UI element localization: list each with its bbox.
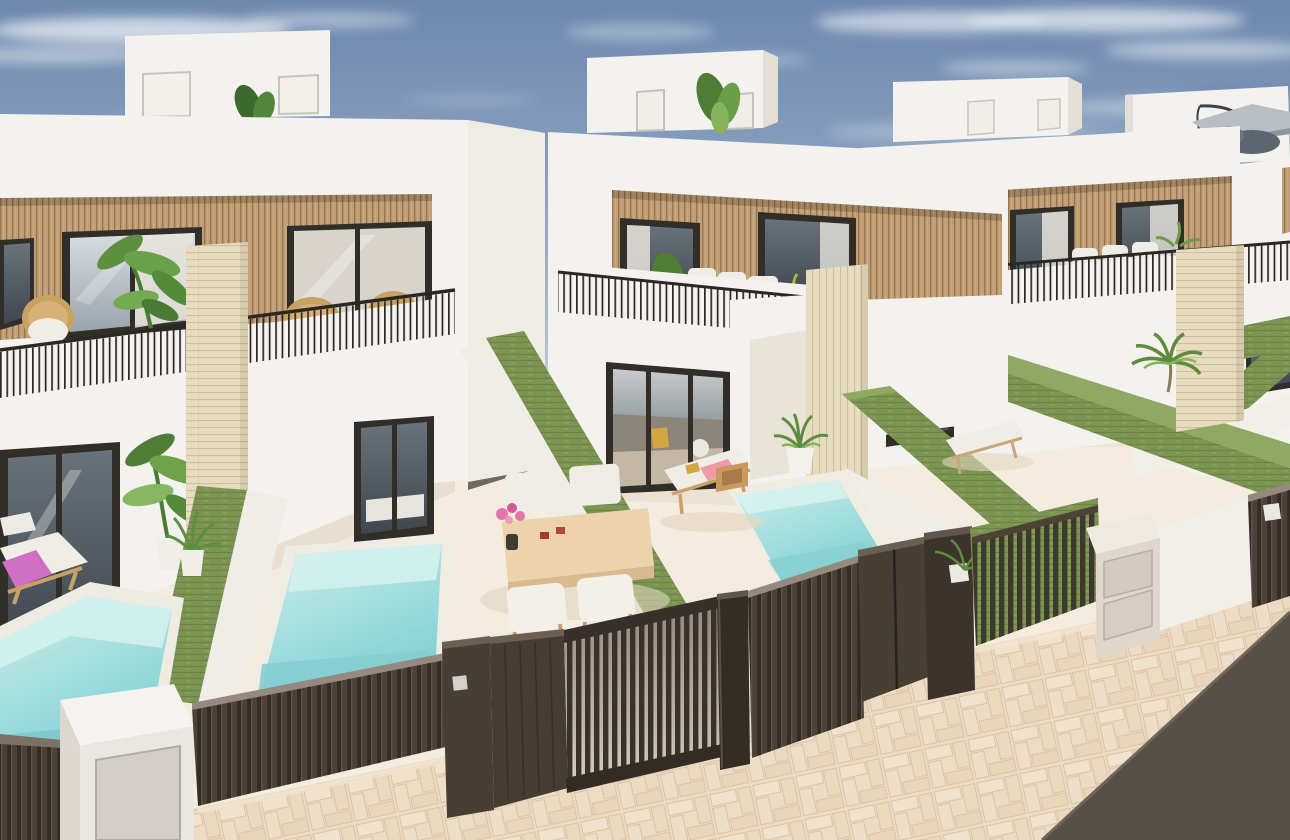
gate-pillar-signed <box>924 526 975 700</box>
travertine-pillar-2 <box>806 264 868 492</box>
double-gate-doors <box>858 536 931 702</box>
pedestrian-door <box>442 636 494 818</box>
gate-pillar <box>717 590 750 770</box>
architectural-render <box>0 0 1290 840</box>
letterbox-panel <box>96 746 180 840</box>
fence-section <box>0 740 62 840</box>
letterbox-pillar <box>60 684 194 840</box>
cup <box>556 527 565 534</box>
house-number-sign <box>1263 503 1281 521</box>
wood-slat-sliver <box>1282 167 1290 234</box>
door-lock <box>452 675 467 690</box>
ground-window <box>354 416 434 542</box>
gate-solid-panel <box>490 629 568 808</box>
cup <box>540 532 549 539</box>
beige-pillar <box>1086 514 1160 658</box>
fence-section-right <box>1248 483 1290 608</box>
